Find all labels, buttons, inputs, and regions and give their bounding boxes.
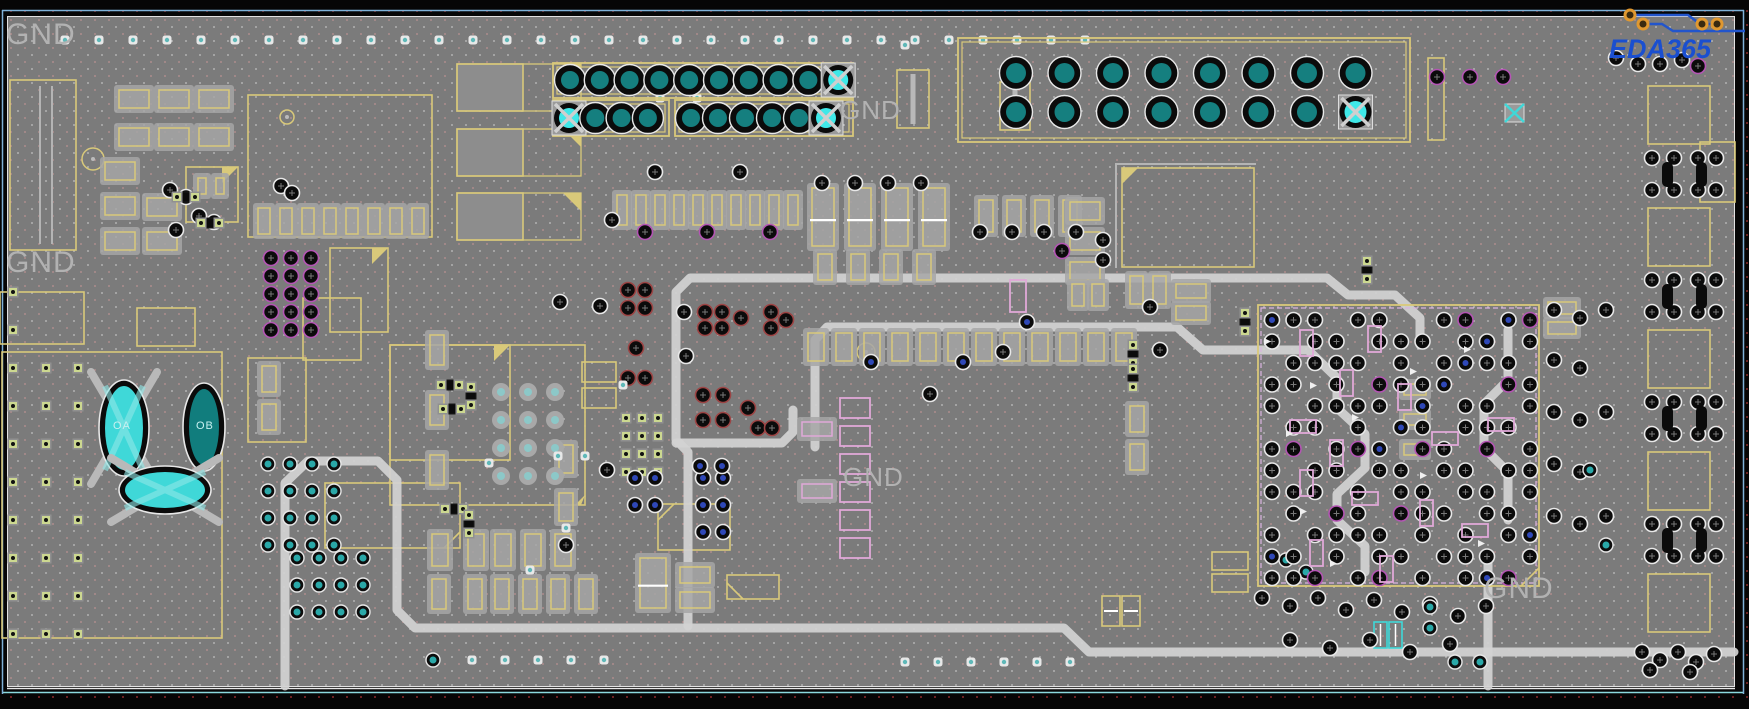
logo-pad-dot xyxy=(1638,19,1648,29)
small-via-hole xyxy=(845,38,849,42)
square-pad-hole xyxy=(656,434,660,438)
thermal-pad-hole xyxy=(551,388,559,396)
square-pad-hole xyxy=(193,195,197,199)
small-via-hole xyxy=(131,38,135,42)
via-core xyxy=(868,359,874,365)
through-hole-barrel xyxy=(639,109,657,127)
component-outline[interactable] xyxy=(1648,574,1710,632)
fanout-bar[interactable] xyxy=(1662,162,1673,187)
small-via-hole xyxy=(403,38,407,42)
small-via-hole xyxy=(267,38,271,42)
through-hole-barrel xyxy=(1006,102,1026,122)
fanout-bar[interactable] xyxy=(1696,284,1707,309)
smd-pad[interactable] xyxy=(797,479,837,503)
smd-pad[interactable] xyxy=(425,330,449,370)
square-pad-hole xyxy=(76,480,80,484)
thermal-pad-hole xyxy=(551,472,559,480)
via-core xyxy=(1269,317,1275,323)
via-hole xyxy=(309,515,316,522)
through-hole-barrel xyxy=(770,71,788,89)
through-hole-barrel xyxy=(591,71,609,89)
square-pad-hole xyxy=(44,556,48,560)
small-via-hole xyxy=(936,660,940,664)
square-pad-hole xyxy=(1365,277,1369,281)
via-hole xyxy=(309,488,316,495)
via-hole xyxy=(265,461,272,468)
small-via-hole xyxy=(879,38,883,42)
gnd-plane-label[interactable]: GND xyxy=(6,20,76,50)
through-hole-barrel xyxy=(1249,63,1269,83)
thermal-pad-hole xyxy=(524,444,532,452)
component-outline[interactable] xyxy=(582,362,616,382)
square-pad-hole xyxy=(624,434,628,438)
component-outline[interactable] xyxy=(137,308,195,346)
square-pad-hole xyxy=(469,403,473,407)
small-via-hole xyxy=(503,658,507,662)
smd-pad[interactable] xyxy=(520,529,546,571)
smd-pad[interactable] xyxy=(463,574,487,614)
via-hole xyxy=(287,542,294,549)
pink-pad[interactable] xyxy=(1010,280,1026,312)
component-outline[interactable] xyxy=(390,345,510,460)
square-pad-hole xyxy=(217,221,221,225)
square-pad-hole xyxy=(656,416,660,420)
fanout-bar[interactable] xyxy=(1696,406,1707,431)
component-outline[interactable] xyxy=(1122,168,1254,267)
through-hole-barrel xyxy=(710,71,728,89)
pad-label-ob: OB xyxy=(196,421,214,432)
chamfer-pad-square[interactable] xyxy=(457,64,523,111)
small-via-hole xyxy=(471,38,475,42)
square-pad-hole xyxy=(175,195,179,199)
smd-pad[interactable] xyxy=(100,227,140,255)
thermal-pad-hole xyxy=(497,416,505,424)
through-hole-barrel xyxy=(1055,102,1075,122)
square-pad-hole xyxy=(11,594,15,598)
square-pad-hole xyxy=(11,290,15,294)
square-pad-hole xyxy=(624,416,628,420)
smd-pad-outline[interactable] xyxy=(1212,552,1248,570)
ratsnest-arrow xyxy=(1478,540,1485,547)
pink-pad[interactable] xyxy=(840,426,870,446)
small-via-hole xyxy=(369,38,373,42)
chamfer-pad-hatch xyxy=(563,193,581,211)
logo-pad-dot xyxy=(1625,10,1635,20)
outline-corner-hatch xyxy=(1122,168,1138,184)
square-pad-hole xyxy=(11,404,15,408)
smd-pad[interactable] xyxy=(154,85,194,113)
smd-pad[interactable] xyxy=(490,574,514,614)
square-pad-hole xyxy=(11,442,15,446)
square-pad-hole xyxy=(76,556,80,560)
ratsnest-arrow xyxy=(1310,382,1317,389)
small-via-hole xyxy=(621,383,625,387)
via-hole xyxy=(360,555,367,562)
outline-corner-hatch xyxy=(494,345,510,361)
eda365-logo-text: EDA365 xyxy=(1609,36,1711,63)
through-hole-barrel xyxy=(1103,63,1123,83)
pad-label-oa: OA xyxy=(113,421,131,432)
via-core xyxy=(720,475,726,481)
small-via-hole xyxy=(573,38,577,42)
via-hole xyxy=(287,461,294,468)
square-pad-hole xyxy=(76,594,80,598)
square-pad-hole xyxy=(640,452,644,456)
via-hole xyxy=(1603,542,1610,549)
via-hole xyxy=(316,555,323,562)
fanout-bar[interactable] xyxy=(1662,406,1673,431)
square-pad-hole xyxy=(439,383,443,387)
via-core xyxy=(1506,317,1512,323)
square-pad-hole xyxy=(199,221,203,225)
small-via-hole xyxy=(969,660,973,664)
square-pad-hole xyxy=(44,518,48,522)
thermal-pad-hole xyxy=(497,388,505,396)
component-outline[interactable] xyxy=(1648,208,1710,266)
smd-pad[interactable] xyxy=(726,190,746,230)
via-core xyxy=(719,463,725,469)
logo-trace-line xyxy=(1643,24,1745,31)
via-core xyxy=(652,475,658,481)
via-hole xyxy=(360,582,367,589)
small-via-hole xyxy=(97,38,101,42)
small-via-hole xyxy=(487,461,491,465)
via-hole xyxy=(1427,604,1434,611)
square-pad-hole xyxy=(1243,329,1247,333)
square-pad-hole xyxy=(44,404,48,408)
square-pad-hole xyxy=(44,366,48,370)
small-via-hole xyxy=(165,38,169,42)
square-pad-hole xyxy=(44,480,48,484)
via-hole xyxy=(331,461,338,468)
smd-pad[interactable] xyxy=(114,123,154,151)
via-core xyxy=(697,463,703,469)
via-hole xyxy=(331,488,338,495)
via-hole xyxy=(287,515,294,522)
small-via-hole xyxy=(470,658,474,662)
via-hole xyxy=(360,609,367,616)
thermal-pad-hole xyxy=(497,472,505,480)
small-via-hole xyxy=(709,38,713,42)
square-pad-hole xyxy=(457,383,461,387)
gnd-plane-label[interactable]: GND xyxy=(6,248,76,278)
smd-pad[interactable] xyxy=(546,574,570,614)
small-via-hole xyxy=(528,568,532,572)
smd-pad[interactable] xyxy=(631,190,651,230)
via-core xyxy=(632,502,638,508)
via-hole xyxy=(430,657,437,664)
via-hole xyxy=(309,461,316,468)
square-pad-hole xyxy=(1243,311,1247,315)
smd-pad[interactable] xyxy=(783,190,803,230)
via-core xyxy=(632,475,638,481)
square-pad-hole xyxy=(44,442,48,446)
smd-pad[interactable] xyxy=(100,157,140,185)
smd-pad[interactable] xyxy=(675,562,715,588)
square-pad-hole xyxy=(76,442,80,446)
smd-pad[interactable] xyxy=(1171,279,1211,303)
pcb-layout-canvas[interactable]: GND GND GND GND GND OA OB EDA365 xyxy=(0,0,1749,709)
small-via-hole xyxy=(569,658,573,662)
smd-pad[interactable] xyxy=(194,85,234,113)
square-pad-hole xyxy=(459,407,463,411)
small-via-hole xyxy=(602,658,606,662)
small-via-hole xyxy=(1035,660,1039,664)
square-pad-hole xyxy=(11,518,15,522)
thermal-pad-hole xyxy=(497,444,505,452)
smd-pad[interactable] xyxy=(490,529,516,571)
gnd-plane-label[interactable]: GND xyxy=(840,97,901,123)
small-via-hole xyxy=(1068,660,1072,664)
through-hole-barrel xyxy=(650,71,668,89)
via-hole xyxy=(287,488,294,495)
smd-pad[interactable] xyxy=(194,123,234,151)
via-core xyxy=(1463,360,1469,366)
square-pad-hole xyxy=(656,452,660,456)
pink-pad[interactable] xyxy=(840,510,870,530)
component-outline[interactable] xyxy=(0,292,84,344)
square-pad-hole xyxy=(467,513,471,517)
smd-pad-outline[interactable] xyxy=(1212,574,1248,592)
via-hole xyxy=(331,542,338,549)
via-core xyxy=(720,502,726,508)
pink-pad[interactable] xyxy=(840,538,870,558)
via-core xyxy=(960,359,966,365)
ratsnest-arrow xyxy=(1300,508,1307,515)
square-pad-hole xyxy=(467,531,471,535)
square-pad-hole xyxy=(11,632,15,636)
through-hole-barrel xyxy=(621,71,639,89)
component-outline[interactable] xyxy=(582,388,616,408)
component-outline[interactable] xyxy=(1648,452,1710,510)
smd-pad[interactable] xyxy=(574,574,598,614)
logo-pad-dot xyxy=(1697,19,1707,29)
via-hole xyxy=(338,582,345,589)
via-core xyxy=(1024,319,1030,325)
through-hole-barrel xyxy=(680,71,698,89)
via-hole xyxy=(294,609,301,616)
smd-pad[interactable] xyxy=(1065,197,1105,225)
smd-pad[interactable] xyxy=(797,417,837,441)
via-hole xyxy=(265,542,272,549)
silk-circle-dot xyxy=(285,115,289,119)
via-hole xyxy=(294,582,301,589)
square-pad-hole xyxy=(624,470,628,474)
smd-pad[interactable] xyxy=(764,190,784,230)
square-pad-hole xyxy=(11,556,15,560)
thermal-pad-hole xyxy=(524,388,532,396)
through-hole-barrel xyxy=(613,109,631,127)
fanout-bar[interactable] xyxy=(1662,284,1673,309)
square-pad-hole xyxy=(1131,367,1135,371)
via-core xyxy=(700,502,706,508)
through-hole-barrel xyxy=(740,71,758,89)
via-hole xyxy=(316,582,323,589)
component-outline[interactable] xyxy=(1648,330,1710,388)
square-pad-hole xyxy=(44,632,48,636)
thermal-pad-hole xyxy=(551,444,559,452)
smd-pad[interactable] xyxy=(1171,301,1211,325)
small-via-hole xyxy=(675,38,679,42)
smd-pad[interactable] xyxy=(669,190,689,230)
square-pad-hole xyxy=(76,366,80,370)
smd-pad[interactable] xyxy=(707,190,727,230)
through-hole-barrel xyxy=(1200,102,1220,122)
through-hole-barrel xyxy=(1346,63,1366,83)
through-hole-barrel xyxy=(790,109,808,127)
component-outline[interactable] xyxy=(10,80,76,250)
smd-pad[interactable] xyxy=(154,123,194,151)
through-hole-barrel xyxy=(1103,102,1123,122)
via-hole xyxy=(316,609,323,616)
square-pad-hole xyxy=(76,518,80,522)
via-hole xyxy=(1587,467,1594,474)
smd-pad[interactable] xyxy=(211,173,229,199)
small-via-hole xyxy=(777,38,781,42)
small-via-hole xyxy=(556,454,560,458)
via-hole xyxy=(338,609,345,616)
pink-pad[interactable] xyxy=(840,398,870,418)
chamfer-pad-square[interactable] xyxy=(457,129,523,176)
via-hole xyxy=(331,515,338,522)
pour-split-line xyxy=(1116,164,1256,268)
smd-pad[interactable] xyxy=(425,450,449,490)
via-hole xyxy=(1477,659,1484,666)
square-pad-hole xyxy=(1131,385,1135,389)
thermal-pad-hole xyxy=(551,416,559,424)
small-via-hole xyxy=(539,38,543,42)
through-hole-barrel xyxy=(709,109,727,127)
via-core xyxy=(1377,446,1383,452)
square-pad-hole xyxy=(443,507,447,511)
small-via-hole xyxy=(199,38,203,42)
through-hole-barrel xyxy=(799,71,817,89)
silk-circle-dot xyxy=(91,157,95,161)
through-hole-barrel xyxy=(561,71,579,89)
via-core xyxy=(1527,532,1533,538)
through-hole-barrel xyxy=(1055,63,1075,83)
smd-pad[interactable] xyxy=(675,587,715,613)
small-via-hole xyxy=(743,38,747,42)
logo-pad-dot xyxy=(1712,19,1722,29)
small-via-hole xyxy=(583,454,587,458)
through-hole-barrel xyxy=(1249,102,1269,122)
through-hole-barrel xyxy=(1006,63,1026,83)
through-hole-barrel xyxy=(1200,63,1220,83)
small-via-hole xyxy=(903,660,907,664)
gnd-plane-label[interactable]: GND xyxy=(843,464,904,490)
smd-pad[interactable] xyxy=(650,190,670,230)
component-outline[interactable] xyxy=(727,575,779,599)
via-core xyxy=(652,502,658,508)
smd-pad[interactable] xyxy=(745,190,765,230)
through-hole-barrel xyxy=(736,109,754,127)
small-via-hole xyxy=(233,38,237,42)
smd-pad[interactable] xyxy=(518,574,542,614)
through-hole-barrel xyxy=(586,109,604,127)
via-hole xyxy=(338,555,345,562)
via-hole xyxy=(294,555,301,562)
small-via-hole xyxy=(437,38,441,42)
component-outline[interactable] xyxy=(330,248,388,332)
ratsnest-arrow xyxy=(1420,472,1427,479)
via-core xyxy=(1269,554,1275,560)
smd-pad[interactable] xyxy=(427,574,451,614)
chamfer-pad-square[interactable] xyxy=(457,193,523,240)
bga-escape-pad[interactable] xyxy=(1310,540,1323,566)
through-hole-barrel xyxy=(763,109,781,127)
outline-chamfer xyxy=(727,583,743,599)
square-pad-hole xyxy=(76,404,80,408)
square-pad-hole xyxy=(44,594,48,598)
square-pad-hole xyxy=(1131,343,1135,347)
through-hole-barrel xyxy=(1152,63,1172,83)
via-hole xyxy=(309,542,316,549)
square-pad-hole xyxy=(11,328,15,332)
through-hole-barrel xyxy=(1297,63,1317,83)
via-hole xyxy=(1427,625,1434,632)
square-pad-hole xyxy=(11,480,15,484)
fanout-bar[interactable] xyxy=(1662,528,1673,553)
small-via-hole xyxy=(641,38,645,42)
via-core xyxy=(1398,425,1404,431)
small-via-hole xyxy=(913,38,917,42)
square-pad-hole xyxy=(76,632,80,636)
via-hole xyxy=(265,488,272,495)
square-pad-hole xyxy=(11,366,15,370)
square-pad-hole xyxy=(640,434,644,438)
small-via-hole xyxy=(1002,660,1006,664)
square-pad-hole xyxy=(640,416,644,420)
via-hole xyxy=(265,515,272,522)
fanout-bar[interactable] xyxy=(1696,162,1707,187)
via-core xyxy=(1484,339,1490,345)
square-pad-hole xyxy=(624,452,628,456)
square-pad-hole xyxy=(469,385,473,389)
small-via-hole xyxy=(607,38,611,42)
via-core xyxy=(1420,403,1426,409)
square-pad-hole xyxy=(441,407,445,411)
via-core xyxy=(1441,382,1447,388)
through-hole-barrel xyxy=(1152,102,1172,122)
via-core xyxy=(700,475,706,481)
via-core xyxy=(720,529,726,535)
gnd-plane-label[interactable]: GND xyxy=(1484,574,1554,604)
smd-pad[interactable] xyxy=(114,85,154,113)
smd-pad[interactable] xyxy=(427,529,453,571)
through-hole-barrel xyxy=(682,109,700,127)
fanout-bar[interactable] xyxy=(1696,528,1707,553)
through-hole-barrel xyxy=(1297,102,1317,122)
small-via-hole xyxy=(564,526,568,530)
component-outline[interactable] xyxy=(1648,86,1710,144)
outline-corner-hatch xyxy=(372,248,388,264)
thermal-pad-hole xyxy=(524,472,532,480)
via-hole xyxy=(1452,659,1459,666)
small-via-hole xyxy=(301,38,305,42)
square-pad-hole xyxy=(1365,259,1369,263)
small-via-hole xyxy=(505,38,509,42)
ratsnest-arrow xyxy=(1410,368,1417,375)
small-via-hole xyxy=(536,658,540,662)
via-core xyxy=(700,529,706,535)
small-via-hole xyxy=(811,38,815,42)
small-via-hole xyxy=(903,43,907,47)
small-via-hole xyxy=(335,38,339,42)
thermal-pad-hole xyxy=(524,416,532,424)
small-via-hole xyxy=(947,38,951,42)
smd-pad[interactable] xyxy=(100,192,140,220)
